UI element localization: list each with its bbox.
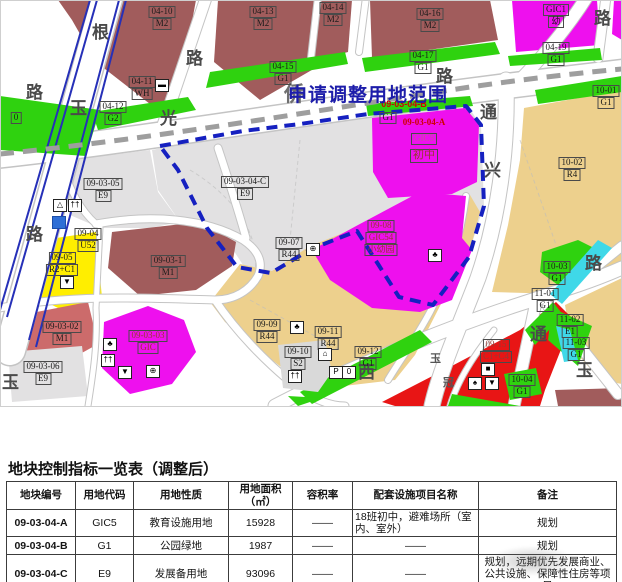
col-header-area: 用地面积（㎡） bbox=[229, 482, 293, 510]
cell-area: 1987 bbox=[229, 537, 293, 555]
road-char-lu-5: 路 bbox=[594, 10, 611, 27]
road-char-tong-2: 通 bbox=[530, 326, 547, 343]
parcel-label-11-02: 11-02E1 bbox=[557, 314, 584, 338]
road-char-yu-2: 玉 bbox=[2, 374, 19, 391]
parcel-label-11-03: 11-03G1 bbox=[563, 337, 590, 361]
parcel-label-09-07: 09-07R44 bbox=[276, 237, 303, 261]
table-row: 09-03-04-B G1 公园绿地 1987 —— —— 规划 bbox=[7, 537, 617, 555]
col-header-use-code: 用地代码 bbox=[76, 482, 134, 510]
cell-facilities: 18班初中，避难场所（室内、室外） bbox=[353, 510, 479, 537]
planning-screenshot: 04-10M2 04-13M2 04-14M2 04-16M2 GIC1幼 04… bbox=[0, 0, 622, 582]
road-char-gen: 根 bbox=[92, 24, 109, 41]
persons-icon-3: †† bbox=[288, 370, 302, 383]
cell-use-type: 发展备用地 bbox=[134, 555, 229, 582]
table-row: 09-03-04-C E9 发展备用地 93096 —— —— 规划，远期优先发… bbox=[7, 555, 617, 582]
hospital-icon: ⊕ bbox=[146, 365, 160, 378]
zero-icon: 0 bbox=[342, 366, 356, 379]
road-char-lu-2: 路 bbox=[26, 84, 43, 101]
cell-code: 09-03-04-C bbox=[7, 555, 76, 582]
road-char-lu-6: 路 bbox=[585, 255, 602, 272]
parcel-label-09-03-06: 09-03-06E9 bbox=[24, 361, 63, 385]
col-header-parcel-code: 地块编号 bbox=[7, 482, 76, 510]
table-title: 地块控制指标一览表（调整后） bbox=[8, 458, 218, 479]
road-char-yu-1: 玉 bbox=[70, 100, 87, 117]
cell-area: 15928 bbox=[229, 510, 293, 537]
cell-remark: 规划，远期优先发展商业、公共设施、保障性住房等项目 bbox=[479, 555, 617, 582]
road-char-yu-3: 玉 bbox=[576, 362, 593, 379]
parcel-label-09-10: 09-10S2 bbox=[285, 346, 312, 370]
parcel-label-09-12: 09-12G1 bbox=[355, 346, 382, 370]
road-char-guang: 光 bbox=[160, 110, 177, 127]
parcel-label-04-10: 04-10M2 bbox=[149, 6, 176, 30]
table-header-row: 地块编号 用地代码 用地性质 用地面积（㎡） 容积率 配套设施项目名称 备注 bbox=[7, 482, 617, 510]
road-char-tong-1: 通 bbox=[480, 104, 497, 121]
parking-icon: P bbox=[329, 366, 343, 379]
square-icon: ■ bbox=[481, 363, 495, 376]
tree-icon: ♣ bbox=[103, 338, 117, 351]
spade-icon: ♠ bbox=[468, 377, 482, 390]
parcel-label-09-03-04-C: 09-03-04-CE9 bbox=[221, 176, 269, 200]
cell-far: —— bbox=[293, 537, 353, 555]
adjustment-area-title: 申请调整用地范围 bbox=[288, 80, 448, 107]
cell-facilities: —— bbox=[353, 537, 479, 555]
cell-remark: 规划 bbox=[479, 510, 617, 537]
persons-icon: †† bbox=[68, 199, 82, 212]
bus-icon: ▬ bbox=[155, 79, 169, 92]
col-header-use-type: 用地性质 bbox=[134, 482, 229, 510]
cell-far: —— bbox=[293, 555, 353, 582]
parcel-label-09-03-05: 09-03-05E9 bbox=[84, 178, 123, 202]
cell-remark: 规划 bbox=[479, 537, 617, 555]
parcel-label-04-19: 04-19G1 bbox=[543, 42, 570, 66]
parcel-label-04-14: 04-14M2 bbox=[320, 2, 347, 26]
wheel-icon: ⊕ bbox=[306, 243, 320, 256]
col-header-far: 容积率 bbox=[293, 482, 353, 510]
parcel-label-09-04: 09-04U52 bbox=[75, 228, 102, 252]
col-header-facilities: 配套设施项目名称 bbox=[353, 482, 479, 510]
cell-area: 93096 bbox=[229, 555, 293, 582]
parcel-label-gic1: GIC1幼 bbox=[543, 4, 569, 28]
parcel-label-09-03-04-A-code: GIC5 bbox=[411, 133, 437, 145]
cell-code: 09-03-04-B bbox=[7, 537, 76, 555]
road-char-small-2: 冠 bbox=[443, 378, 454, 389]
building-icon bbox=[52, 216, 66, 229]
tree-icon-2: ♣ bbox=[290, 321, 304, 334]
tree-icon-3: ♣ bbox=[428, 249, 442, 262]
parcel-label-04-13: 04-13M2 bbox=[250, 6, 277, 30]
parcel-label-10-01: 10-01G1 bbox=[593, 85, 620, 109]
arrow-icon: ▼ bbox=[485, 377, 499, 390]
tent-icon: △ bbox=[53, 199, 67, 212]
parcel-label-09-05: 09-05R2+C1 bbox=[46, 252, 78, 276]
road-char-lu-1: 路 bbox=[186, 50, 203, 67]
parcel-label-09-08: 09-08GIC54小幼园 bbox=[364, 220, 397, 256]
cell-far: —— bbox=[293, 510, 353, 537]
parcel-label-09-03-04-A: 09-03-04-A bbox=[401, 118, 448, 128]
house-icon: ⌂ bbox=[318, 348, 332, 361]
col-header-remark: 备注 bbox=[479, 482, 617, 510]
cell-use-type: 公园绿地 bbox=[134, 537, 229, 555]
parcel-label-09-11: 09-11R44 bbox=[315, 326, 342, 350]
parcel-label-10-02: 10-02R4 bbox=[559, 157, 586, 181]
cell-use-code: GIC5 bbox=[76, 510, 134, 537]
road-char-xing: 兴 bbox=[484, 162, 501, 179]
parcel-label-10-03: 10-03G1 bbox=[544, 261, 571, 285]
land-use-map: 04-10M2 04-13M2 04-14M2 04-16M2 GIC1幼 04… bbox=[0, 0, 622, 406]
control-indicator-table: 地块编号 用地代码 用地性质 用地面积（㎡） 容积率 配套设施项目名称 备注 0… bbox=[6, 481, 617, 582]
parcel-label-09-03-1: 09-03-1M1 bbox=[151, 255, 186, 279]
cell-facilities: —— bbox=[353, 555, 479, 582]
table-row: 09-03-04-A GIC5 教育设施用地 15928 —— 18班初中，避难… bbox=[7, 510, 617, 537]
parcel-label-09-03-04-A-use: 初中 bbox=[410, 149, 438, 163]
parcel-label-04-16: 04-16M2 bbox=[417, 8, 444, 32]
parcel-label-11-01: 11-01G1 bbox=[532, 288, 559, 312]
cell-use-code: E9 bbox=[76, 555, 134, 582]
parcel-label-04-12: 04-12G2 bbox=[100, 101, 127, 125]
road-char-lu-3: 路 bbox=[26, 226, 43, 243]
parcel-label-04-11: 04-11WH bbox=[129, 76, 156, 100]
parcel-label-09-03-02: 09-03-02M1 bbox=[43, 321, 82, 345]
parcel-label-09-15: 09-15C1+C4 bbox=[480, 339, 512, 363]
parcel-label-10-04: 10-04G1 bbox=[509, 374, 536, 398]
parcel-label-09-03-04-B-g1: G1 bbox=[380, 112, 397, 124]
cell-code: 09-03-04-A bbox=[7, 510, 76, 537]
market-icon: ▼ bbox=[60, 276, 74, 289]
persons-icon-2: †† bbox=[101, 354, 115, 367]
parcel-label-04-17: 04-17G1 bbox=[410, 50, 437, 74]
cell-use-type: 教育设施用地 bbox=[134, 510, 229, 537]
cell-use-code: G1 bbox=[76, 537, 134, 555]
parcel-label-left-0: 0 bbox=[11, 112, 22, 124]
road-char-small-1: 玉 bbox=[430, 354, 441, 365]
market-icon-2: ▼ bbox=[118, 366, 132, 379]
parcel-label-09-09: 09-09R44 bbox=[254, 319, 281, 343]
parcel-label-09-03-03: 09-03-03GIC bbox=[129, 330, 168, 354]
